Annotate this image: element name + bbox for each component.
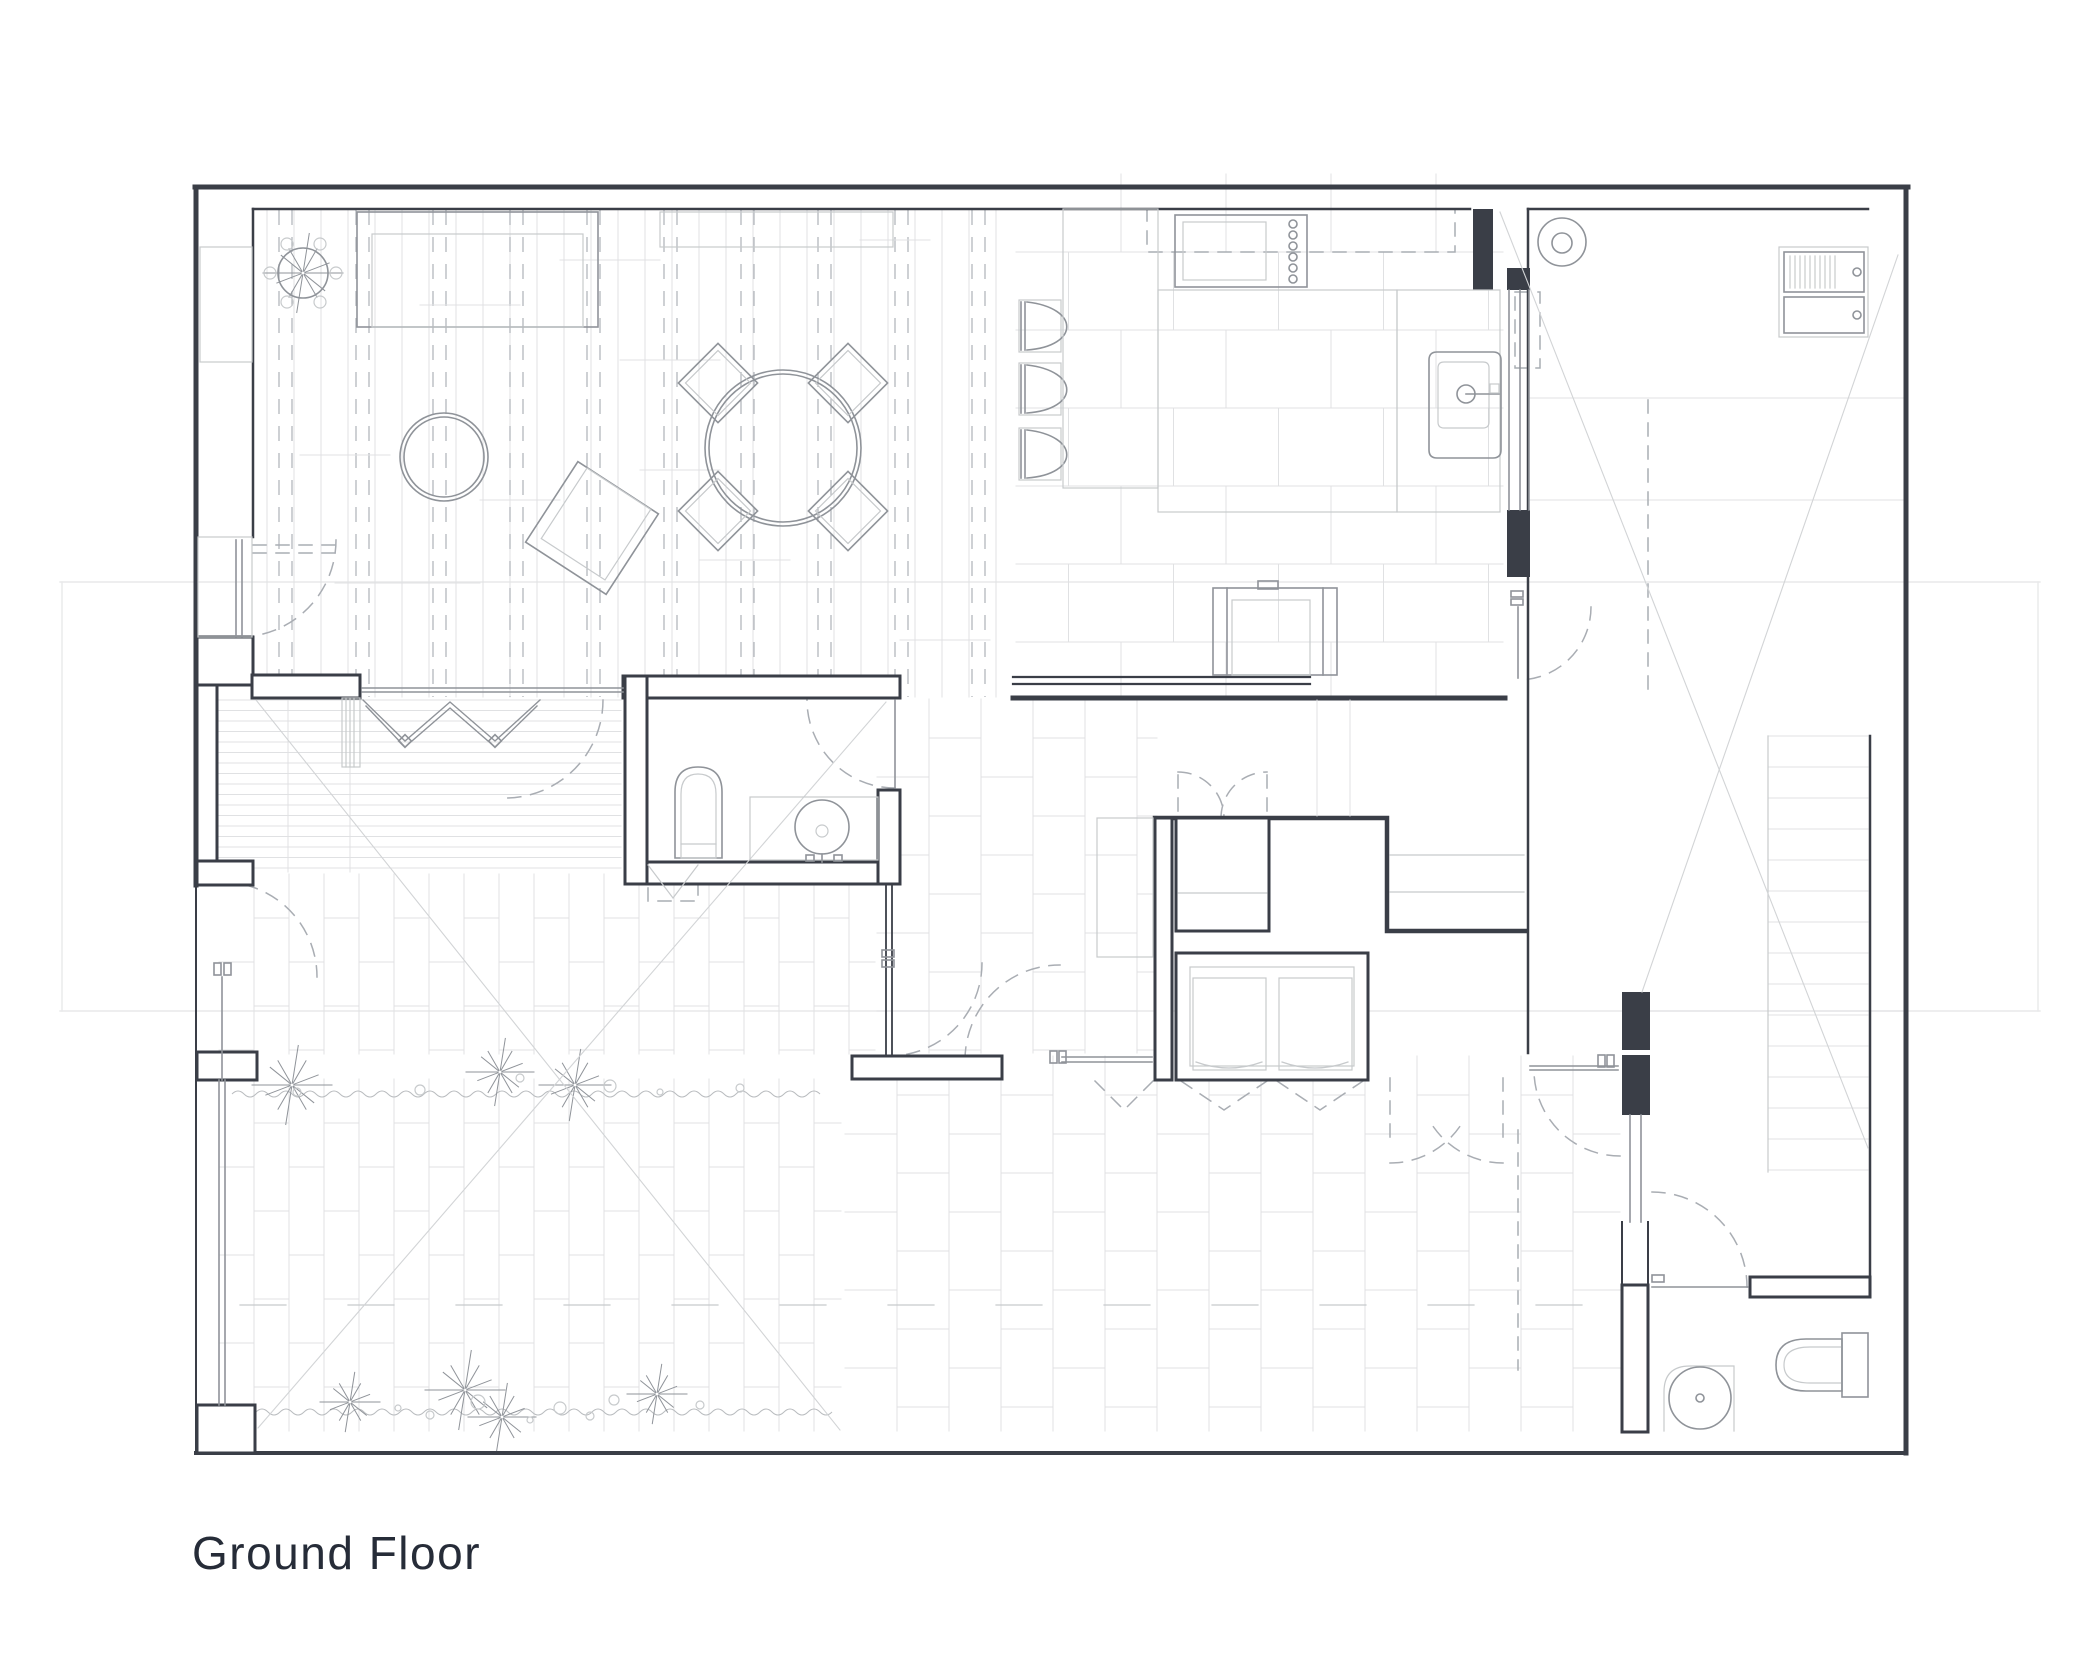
plan-title: Ground Floor (192, 1526, 481, 1580)
kitchen-sink (1429, 352, 1501, 458)
plant-icon (263, 233, 343, 312)
walls-layer (195, 187, 1908, 1453)
floor-plan-page: Ground Floor (0, 0, 2100, 1680)
armchair (526, 462, 659, 595)
bar-stools (1019, 300, 1067, 480)
kitchen-counters (1063, 209, 1500, 512)
ceiling-unit-icon (1538, 218, 1586, 266)
wc-basin (1664, 1366, 1734, 1431)
garden-planting-layer (232, 1038, 832, 1450)
stove (1175, 215, 1307, 287)
wall-cabinet (660, 212, 893, 247)
context-ghost-layer (60, 582, 2040, 1011)
fireplace-stove (1213, 581, 1337, 675)
bath-vanity (750, 797, 878, 862)
furniture-layer (263, 209, 1868, 1431)
boiler-unit (1779, 247, 1868, 337)
wc-toilet (1776, 1333, 1868, 1397)
tv-sideboard (357, 212, 598, 327)
doors-windows-stairs-layer (198, 212, 1898, 1430)
floor-plan-canvas (0, 0, 2100, 1680)
dining-table (705, 370, 861, 526)
bath-toilet (675, 767, 722, 858)
side-table (400, 413, 488, 501)
